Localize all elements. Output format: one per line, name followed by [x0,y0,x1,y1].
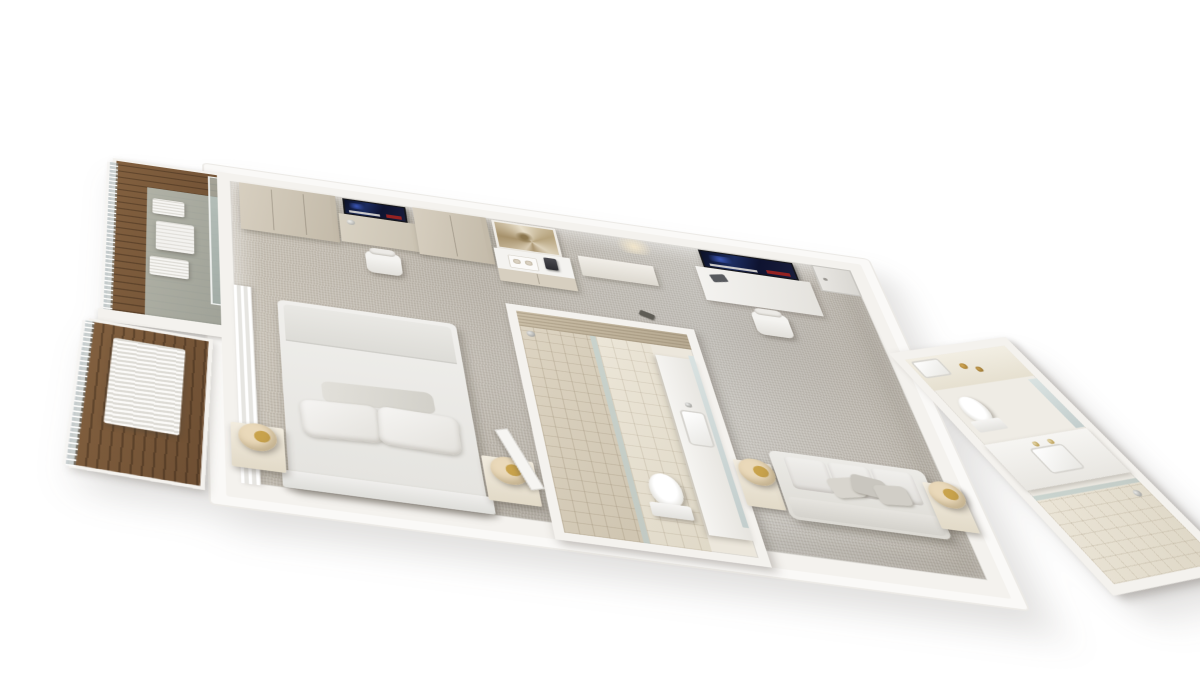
mirror [1028,378,1085,428]
outdoor-table [156,220,195,254]
balcony-railing-icon [62,320,95,467]
suite-plan [103,154,1200,641]
shower [1037,482,1200,584]
floorplan-scene [0,0,1200,675]
balcony-railing-icon [100,162,118,314]
balcony-lower [69,318,213,490]
lounger [104,337,186,435]
